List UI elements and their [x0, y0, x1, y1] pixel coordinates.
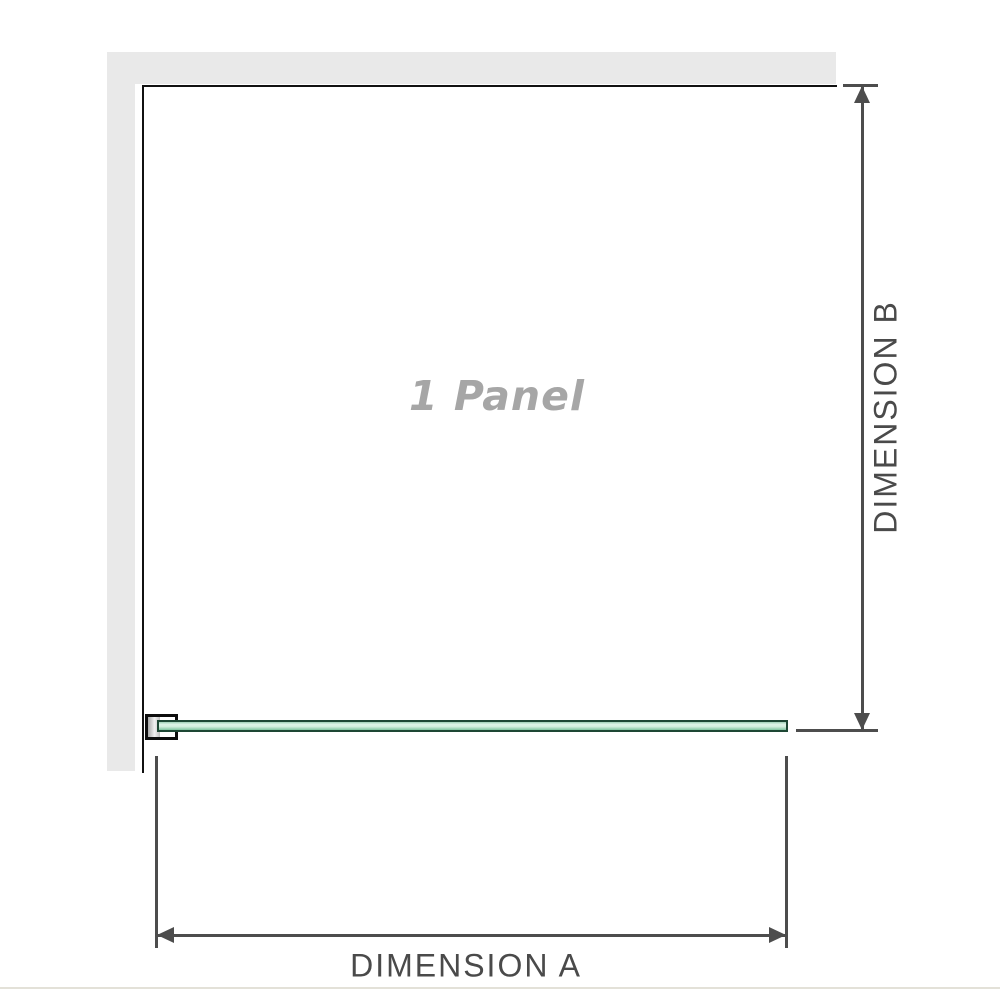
dimension-b-label: DIMENSION B: [868, 300, 905, 534]
dim-a-extension-right: [785, 756, 788, 948]
arrow-left-icon: [157, 927, 174, 943]
panel-outline-left: [142, 85, 144, 773]
dimension-diagram: 1 Panel DIMENSION B DIMENSION A: [0, 0, 1000, 1000]
dim-b-line: [861, 87, 864, 730]
baseline-divider: [0, 987, 1000, 989]
arrow-right-icon: [769, 927, 786, 943]
arrow-up-icon: [854, 86, 870, 103]
wall-top: [107, 52, 836, 84]
dimension-a-label: DIMENSION A: [350, 948, 582, 985]
panel-label: 1 Panel: [409, 372, 585, 420]
dim-a-extension-left: [155, 756, 158, 948]
glass-panel: [157, 720, 788, 732]
panel-outline-top: [142, 85, 837, 87]
arrow-down-icon: [854, 713, 870, 730]
wall-left: [107, 52, 135, 771]
dim-a-line: [158, 934, 786, 937]
